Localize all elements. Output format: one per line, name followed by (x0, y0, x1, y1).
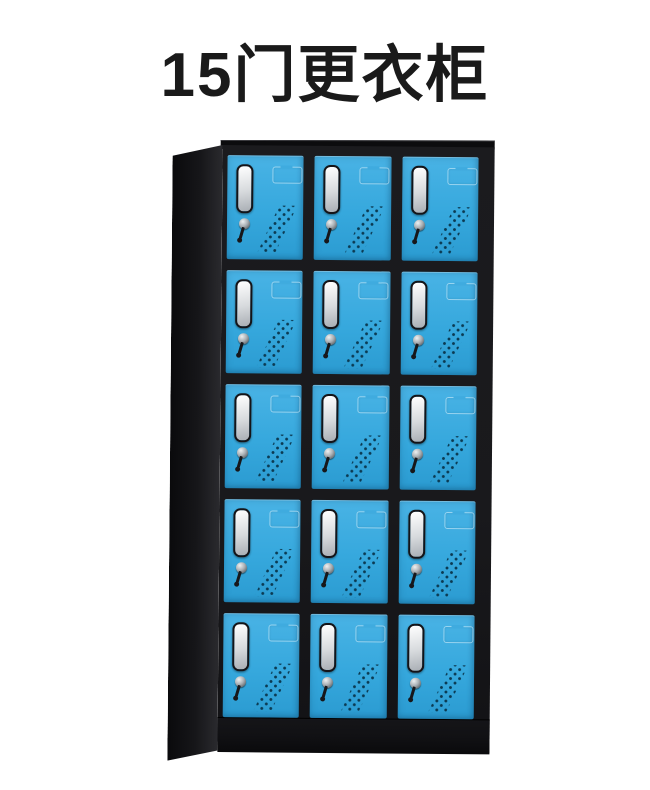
label-emboss-gap (368, 166, 380, 169)
handle-recess-icon (234, 393, 251, 442)
vent-holes-icon (428, 665, 468, 713)
locker-door (226, 270, 303, 374)
handle-recess-icon (236, 164, 253, 213)
locker-door (313, 270, 390, 374)
handle-recess-icon (233, 508, 250, 557)
vent-holes-icon (344, 206, 384, 254)
label-emboss-icon (445, 397, 475, 414)
cabinet-side-panel (167, 145, 222, 761)
hanging-key-icon (322, 686, 328, 698)
locker-door (400, 271, 477, 375)
locker-door (397, 615, 474, 719)
label-emboss-gap (366, 395, 378, 398)
locker-door (401, 157, 478, 261)
label-emboss-gap (451, 625, 463, 628)
label-emboss-gap (278, 395, 290, 398)
locker-door (225, 384, 302, 488)
label-emboss-icon (446, 283, 476, 300)
hanging-key-icon (235, 685, 241, 697)
hanging-key-icon (324, 457, 330, 469)
handle-recess-icon (408, 509, 425, 558)
vent-holes-icon (254, 549, 294, 597)
vent-holes-icon (343, 320, 383, 368)
vent-holes-icon (341, 549, 381, 597)
handle-recess-icon (410, 280, 427, 329)
handle-recess-icon (319, 623, 336, 672)
label-emboss-icon (360, 167, 390, 184)
locker-door (223, 613, 300, 717)
locker-door (227, 155, 304, 259)
locker-door (399, 386, 476, 490)
label-emboss-icon (447, 168, 477, 185)
cabinet-front (217, 145, 494, 753)
label-emboss-gap (364, 625, 376, 628)
label-emboss-gap (452, 511, 464, 514)
handle-recess-icon (321, 394, 338, 443)
label-emboss-gap (454, 282, 466, 285)
label-emboss-icon (444, 512, 474, 529)
handle-recess-icon (232, 623, 249, 672)
label-emboss-icon (271, 281, 301, 298)
handle-recess-icon (323, 165, 340, 214)
hanging-key-icon (412, 343, 418, 355)
handle-recess-icon (320, 509, 337, 558)
hanging-key-icon (413, 228, 419, 240)
hanging-key-icon (238, 341, 244, 353)
vent-holes-icon (340, 664, 380, 712)
label-emboss-icon (358, 396, 388, 413)
label-emboss-icon (270, 396, 300, 413)
hanging-key-icon (410, 572, 416, 584)
vent-holes-icon (431, 321, 471, 369)
locker-cabinet (165, 137, 497, 772)
vent-holes-icon (342, 435, 382, 483)
vent-holes-icon (256, 320, 296, 368)
label-emboss-gap (455, 167, 467, 170)
hanging-key-icon (325, 342, 331, 354)
label-emboss-gap (279, 280, 291, 283)
handle-recess-icon (407, 624, 424, 673)
label-emboss-gap (276, 624, 288, 627)
handle-recess-icon (322, 280, 339, 329)
handle-recess-icon (411, 166, 428, 215)
product-photo: 15门更衣柜 (0, 0, 650, 790)
vent-holes-icon (253, 663, 293, 711)
vent-holes-icon (255, 434, 295, 482)
hanging-key-icon (239, 227, 245, 239)
label-emboss-gap (367, 281, 379, 284)
label-emboss-icon (272, 166, 302, 183)
label-emboss-gap (280, 166, 292, 169)
locker-door (310, 614, 387, 718)
cabinet-base (217, 717, 489, 754)
label-emboss-gap (453, 396, 465, 399)
hanging-key-icon (323, 571, 329, 583)
handle-recess-icon (409, 395, 426, 444)
label-emboss-icon (357, 511, 387, 528)
vent-holes-icon (430, 436, 470, 484)
product-title: 15门更衣柜 (0, 24, 650, 114)
hanging-key-icon (237, 456, 243, 468)
hanging-key-icon (409, 687, 415, 699)
locker-door (312, 385, 389, 489)
label-emboss-icon (268, 625, 298, 642)
label-emboss-icon (443, 626, 473, 643)
locker-door (314, 156, 391, 260)
hanging-key-icon (326, 228, 332, 240)
locker-door (311, 500, 388, 604)
door-grid (218, 145, 495, 719)
vent-holes-icon (432, 206, 472, 254)
handle-recess-icon (235, 279, 252, 328)
locker-door (224, 499, 301, 603)
label-emboss-icon (359, 282, 389, 299)
label-emboss-icon (356, 626, 386, 643)
label-emboss-icon (269, 510, 299, 527)
label-emboss-gap (277, 509, 289, 512)
hanging-key-icon (411, 458, 417, 470)
locker-door (398, 500, 475, 604)
hanging-key-icon (236, 571, 242, 583)
vent-holes-icon (257, 205, 297, 253)
vent-holes-icon (429, 550, 469, 598)
label-emboss-gap (365, 510, 377, 513)
